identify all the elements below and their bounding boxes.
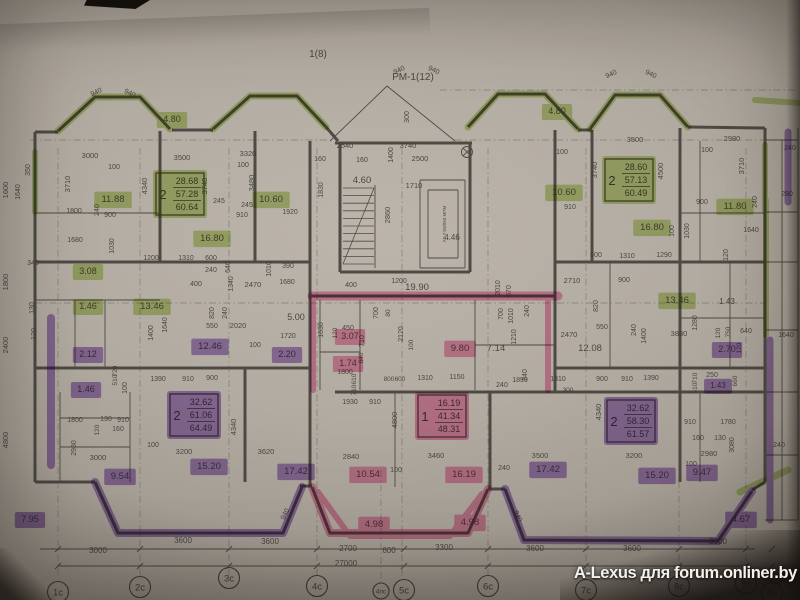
dimension-label: 940 xyxy=(605,69,619,80)
dimension-label: 390 xyxy=(282,263,294,270)
dimension-label: 120 xyxy=(94,424,101,435)
marker-highlight xyxy=(704,379,732,394)
dimension-label: 4500 xyxy=(656,163,665,180)
dimension-label: 4340 xyxy=(594,404,603,421)
marker-highlight xyxy=(633,220,670,237)
dimension-label: 120 xyxy=(31,328,38,340)
axis-marker: 4пс xyxy=(373,583,389,599)
canopy-outline xyxy=(330,86,455,141)
marker-highlight xyxy=(358,517,390,534)
dimension-label: 2710 xyxy=(564,276,581,285)
dimension-label: 1290 xyxy=(656,252,672,259)
dimension-label: 3500 xyxy=(627,135,644,144)
dimension-label: 5.00 xyxy=(287,312,305,322)
dimension-label: 2020 xyxy=(230,321,247,330)
marker-highlight xyxy=(638,468,675,485)
marker-highlight xyxy=(415,392,469,440)
dimension-label: 2500 xyxy=(412,154,429,163)
dimension-label: 2400 xyxy=(1,337,10,354)
axis-label: 4с xyxy=(312,582,322,593)
photo-corner-shadow-left xyxy=(0,548,56,600)
dimension-label: 550 xyxy=(206,323,218,330)
dimension-label: 640 xyxy=(740,328,752,335)
dimension-label: 2540 xyxy=(337,141,354,150)
dimension-label: 3300 xyxy=(435,543,453,552)
dimension-label: 600 xyxy=(382,546,396,555)
dimension-label: 1030 xyxy=(684,223,691,239)
highlighter-layer xyxy=(15,94,800,541)
dimension-label: 3000 xyxy=(89,546,107,555)
marker-highlight xyxy=(272,347,302,363)
dimension-label: 750 xyxy=(725,326,732,337)
dimension-label: 1150 xyxy=(449,374,464,381)
dimension-label: 1400 xyxy=(148,325,155,341)
dimension-label: 1930 xyxy=(342,399,358,406)
dimension-label: 3320 xyxy=(240,149,257,158)
dimension-label: 3080 xyxy=(729,437,736,453)
dimension-label: 910 xyxy=(684,419,696,426)
dimension-label: 240 xyxy=(205,267,217,274)
photo-edge-shadow xyxy=(786,0,800,600)
dimension-label: 160 xyxy=(692,435,704,442)
dimension-label: 910 xyxy=(117,417,129,424)
dimension-label: 1630 xyxy=(318,322,325,338)
axis-marker: 4с xyxy=(307,576,328,597)
dimension-label: 3740 xyxy=(590,162,599,179)
marker-highlight xyxy=(104,469,136,486)
marker-highlight xyxy=(71,382,101,398)
marker-highlight xyxy=(95,482,302,533)
floor-plan-drawing: 1(8)РМ-1(12)9409409409409409404.804.8030… xyxy=(0,0,800,600)
dimension-label: 600 xyxy=(395,376,406,383)
dimension-label: 240 xyxy=(522,369,529,381)
dimension-label: 1680 xyxy=(67,237,83,244)
dimension-label: 1400 xyxy=(641,328,648,344)
dimension-label: 400 xyxy=(345,282,357,289)
dimension-label: 100 xyxy=(390,467,402,474)
dimension-label: 3710 xyxy=(63,176,72,193)
marker-highlight xyxy=(73,264,103,280)
dimension-label: 1390 xyxy=(643,375,659,382)
dimension-label: 3000 xyxy=(90,453,107,462)
dimension-label: 1390 xyxy=(150,376,166,383)
dimension-label: 1210 xyxy=(511,329,518,345)
axis-label: 4пс xyxy=(376,589,387,596)
dimension-label: 1640 xyxy=(743,227,759,234)
wall-line xyxy=(688,127,765,128)
dimension-label: 640 xyxy=(225,261,232,273)
dimension-label: 300 xyxy=(404,111,411,123)
dimension-label: 160 xyxy=(112,426,124,433)
marker-highlight xyxy=(686,465,718,482)
dimension-label: 1310 xyxy=(619,253,635,260)
marker-highlight xyxy=(15,512,45,528)
marker-highlight xyxy=(529,462,566,479)
dimension-label: 1010 xyxy=(266,261,273,277)
dimension-label: 2860 xyxy=(383,207,392,224)
dimension-label: 130 xyxy=(29,302,36,314)
dimension-label: 2700 xyxy=(339,544,357,553)
dimension-label: 2470 xyxy=(561,330,578,339)
dimension-label: 250 xyxy=(706,372,718,379)
dimension-label: 100 xyxy=(147,442,159,449)
dimension-label: 1830 xyxy=(318,182,325,198)
dimension-label: 1030 xyxy=(109,238,116,254)
partition-walls xyxy=(35,128,798,566)
dimension-label: 900 xyxy=(596,376,608,383)
marker-highlight xyxy=(153,170,207,218)
marker-highlight xyxy=(590,95,688,129)
dimension-label: 1200 xyxy=(391,278,407,285)
dimension-label: 1780 xyxy=(720,419,736,426)
dimension-label: 1(8) xyxy=(309,49,327,60)
dimension-label: 130 xyxy=(714,435,726,442)
dimension-label: 160 xyxy=(314,156,326,163)
dimension-label: 700 xyxy=(373,307,380,319)
dimension-label: 3200 xyxy=(176,447,193,456)
axis-label: 3с xyxy=(224,574,234,585)
dimension-label: 510 xyxy=(692,382,699,393)
dimension-label: 900 xyxy=(696,199,708,206)
marker-highlight xyxy=(58,97,170,131)
marker-highlight xyxy=(94,192,131,209)
marker-highlight xyxy=(602,156,656,204)
dimension-label: 2980 xyxy=(71,440,78,456)
dimension-label: 27000 xyxy=(335,559,358,568)
marker-highlight xyxy=(191,339,228,356)
dimension-label: 340 xyxy=(27,260,39,267)
dimension-label: 710 xyxy=(692,372,699,383)
marker-highlight xyxy=(712,342,742,358)
dimension-label: 1340 xyxy=(228,276,235,292)
dimension-label: 910 xyxy=(182,376,194,383)
dimension-label: 120 xyxy=(715,327,722,338)
axis-marker: 6с xyxy=(478,576,499,597)
dimension-label: 1280 xyxy=(692,315,699,331)
dimension-label: 3600 xyxy=(526,544,544,553)
dimension-label: 910 xyxy=(236,212,248,219)
marker-highlight xyxy=(167,391,221,439)
dimension-label: 510 xyxy=(112,374,119,385)
dimension-label: 3740 xyxy=(400,141,417,150)
dimension-label: 240 xyxy=(631,324,638,336)
dimension-label: 1310 xyxy=(178,255,194,262)
axis-label: 6с xyxy=(483,582,493,593)
dimension-label: 80 xyxy=(385,309,392,317)
dimension-label: 4340 xyxy=(229,419,238,436)
dimension-label: 1010 xyxy=(508,308,515,324)
dimension-label: 245 xyxy=(241,202,253,209)
dimension-label: 240 xyxy=(773,442,785,449)
marker-highlight xyxy=(333,356,363,372)
dimension-label: 100 xyxy=(122,382,129,394)
stairwell xyxy=(343,188,374,264)
dimension-label: 910 xyxy=(621,376,633,383)
dimension-label: 900 xyxy=(104,212,116,219)
marker-highlight xyxy=(213,96,326,129)
dimension-label: 100 xyxy=(701,147,713,154)
dimension-label: АТ-7.03/093 МПМ xyxy=(442,206,447,243)
dimension-label: 820 xyxy=(593,300,600,312)
dimension-label: 3200 xyxy=(626,451,643,460)
dimension-label: 1800 xyxy=(1,274,10,291)
dimension-label: 1800 xyxy=(66,208,82,215)
dimension-label: 300 xyxy=(563,387,574,394)
dimension-label: 800 xyxy=(384,376,395,383)
dimension-label: 3830 xyxy=(671,329,688,338)
dimension-label: 900 xyxy=(206,375,218,382)
dimension-label: 100 xyxy=(408,339,415,350)
dimension-label: 1600 xyxy=(1,182,10,199)
dimension-label: 7.14 xyxy=(487,343,506,354)
dimension-label: 940 xyxy=(644,69,658,80)
dimension-label: 3500 xyxy=(174,153,191,162)
dimension-label: 3000 xyxy=(82,151,99,160)
dimension-label: 100 xyxy=(108,164,120,171)
marker-highlight xyxy=(716,199,753,216)
dimension-label: 100 xyxy=(556,149,568,156)
dimension-label: 3500 xyxy=(532,451,549,460)
marker-highlight xyxy=(277,464,314,481)
dimension-label: 1640 xyxy=(162,317,169,333)
axis-marker: 2с xyxy=(130,577,151,598)
dimension-label: 2980 xyxy=(724,134,741,143)
bay-window-wall xyxy=(95,482,302,533)
dimension-label: 900 xyxy=(618,277,630,284)
dimension-label: 1310 xyxy=(550,376,566,383)
dimension-label: 3620 xyxy=(258,447,275,456)
dimension-label: 1710 xyxy=(406,181,423,190)
dimension-label: 1800 xyxy=(67,417,83,424)
dimension-label: 1310 xyxy=(417,375,433,382)
dimension-label: 240 xyxy=(524,305,531,317)
marker-highlight xyxy=(73,299,103,315)
dimension-label: 550 xyxy=(596,324,608,331)
dimension-label: 350 xyxy=(25,164,32,176)
dimension-label: 600 xyxy=(205,255,217,262)
marker-highlight xyxy=(725,512,757,528)
dimension-label: 820 xyxy=(209,307,216,319)
dimension-label: 100 xyxy=(249,342,261,349)
dimension-label: 1720 xyxy=(280,333,296,340)
marker-highlight xyxy=(190,459,227,476)
dimension-label: 600 xyxy=(590,252,602,259)
axis-label: 5с xyxy=(399,586,409,597)
dimension-label: 240 xyxy=(222,307,229,319)
dimension-label: 19.90 xyxy=(405,282,429,293)
axis-marker: 5с xyxy=(394,580,415,600)
dimension-label: 1.43 xyxy=(719,297,735,306)
marker-highlight xyxy=(444,341,476,358)
dimension-label: 1920 xyxy=(282,209,298,216)
dimension-label: 1200 xyxy=(143,255,159,262)
dimension-label: 4340 xyxy=(140,178,149,195)
dimension-label: 3710 xyxy=(737,158,746,175)
marker-highlight xyxy=(542,104,572,120)
marker-highlight xyxy=(133,299,170,316)
marker-highlight xyxy=(349,467,386,484)
dimension-label: 700 xyxy=(498,308,505,320)
marker-highlight xyxy=(193,231,230,248)
dimension-label: 2470 xyxy=(245,280,262,289)
dimension-label: 660 xyxy=(732,375,739,386)
marker-highlight xyxy=(454,515,486,532)
marker-highlight xyxy=(604,397,658,445)
watermark: A-Lexus для forum.onliner.by xyxy=(574,564,800,583)
dimension-label: 160 xyxy=(356,157,368,164)
marker-highlight xyxy=(445,467,482,484)
dimension-label: 3480 xyxy=(247,175,256,192)
dimension-label: 120 xyxy=(723,249,730,261)
dimension-label: 240 xyxy=(496,382,508,389)
marker-highlight xyxy=(658,293,695,310)
dimension-label: 12.08 xyxy=(578,343,602,354)
marker-highlight xyxy=(545,185,582,202)
axis-label: 2с xyxy=(135,583,145,594)
dimension-label: 4800 xyxy=(1,432,10,449)
dimension-label: 100 xyxy=(237,162,249,169)
dimension-label: 2980 xyxy=(701,449,718,458)
dimension-label: 910 xyxy=(564,204,576,211)
dimension-label: 400 xyxy=(190,281,202,288)
dimension-label: 1400 xyxy=(388,147,395,163)
dimension-label: 4800 xyxy=(390,412,399,429)
dimension-label: 710 xyxy=(351,384,358,395)
dimension-label: 2840 xyxy=(343,452,360,461)
dimension-label: 2120 xyxy=(398,326,405,342)
dimension-label: 130 xyxy=(100,416,112,423)
floor-plan-photo: 1(8)РМ-1(12)9409409409409409404.804.8030… xyxy=(0,0,800,600)
marker-highlight xyxy=(335,329,365,345)
dimension-label: 1640 xyxy=(15,184,22,200)
dimension-label: 3600 xyxy=(261,537,279,546)
dimension-label: 910 xyxy=(369,399,381,406)
dimension-label: 3600 xyxy=(174,536,192,545)
dimension-label: 240 xyxy=(498,465,510,472)
dimension-label: 1680 xyxy=(279,279,295,286)
dimension-label: 245 xyxy=(213,198,225,205)
marker-highlight xyxy=(252,192,289,209)
marker-highlight xyxy=(157,112,187,128)
dimension-label: 4.60 xyxy=(353,175,372,186)
marker-highlight xyxy=(73,347,103,363)
dimension-label: 3460 xyxy=(428,451,445,460)
